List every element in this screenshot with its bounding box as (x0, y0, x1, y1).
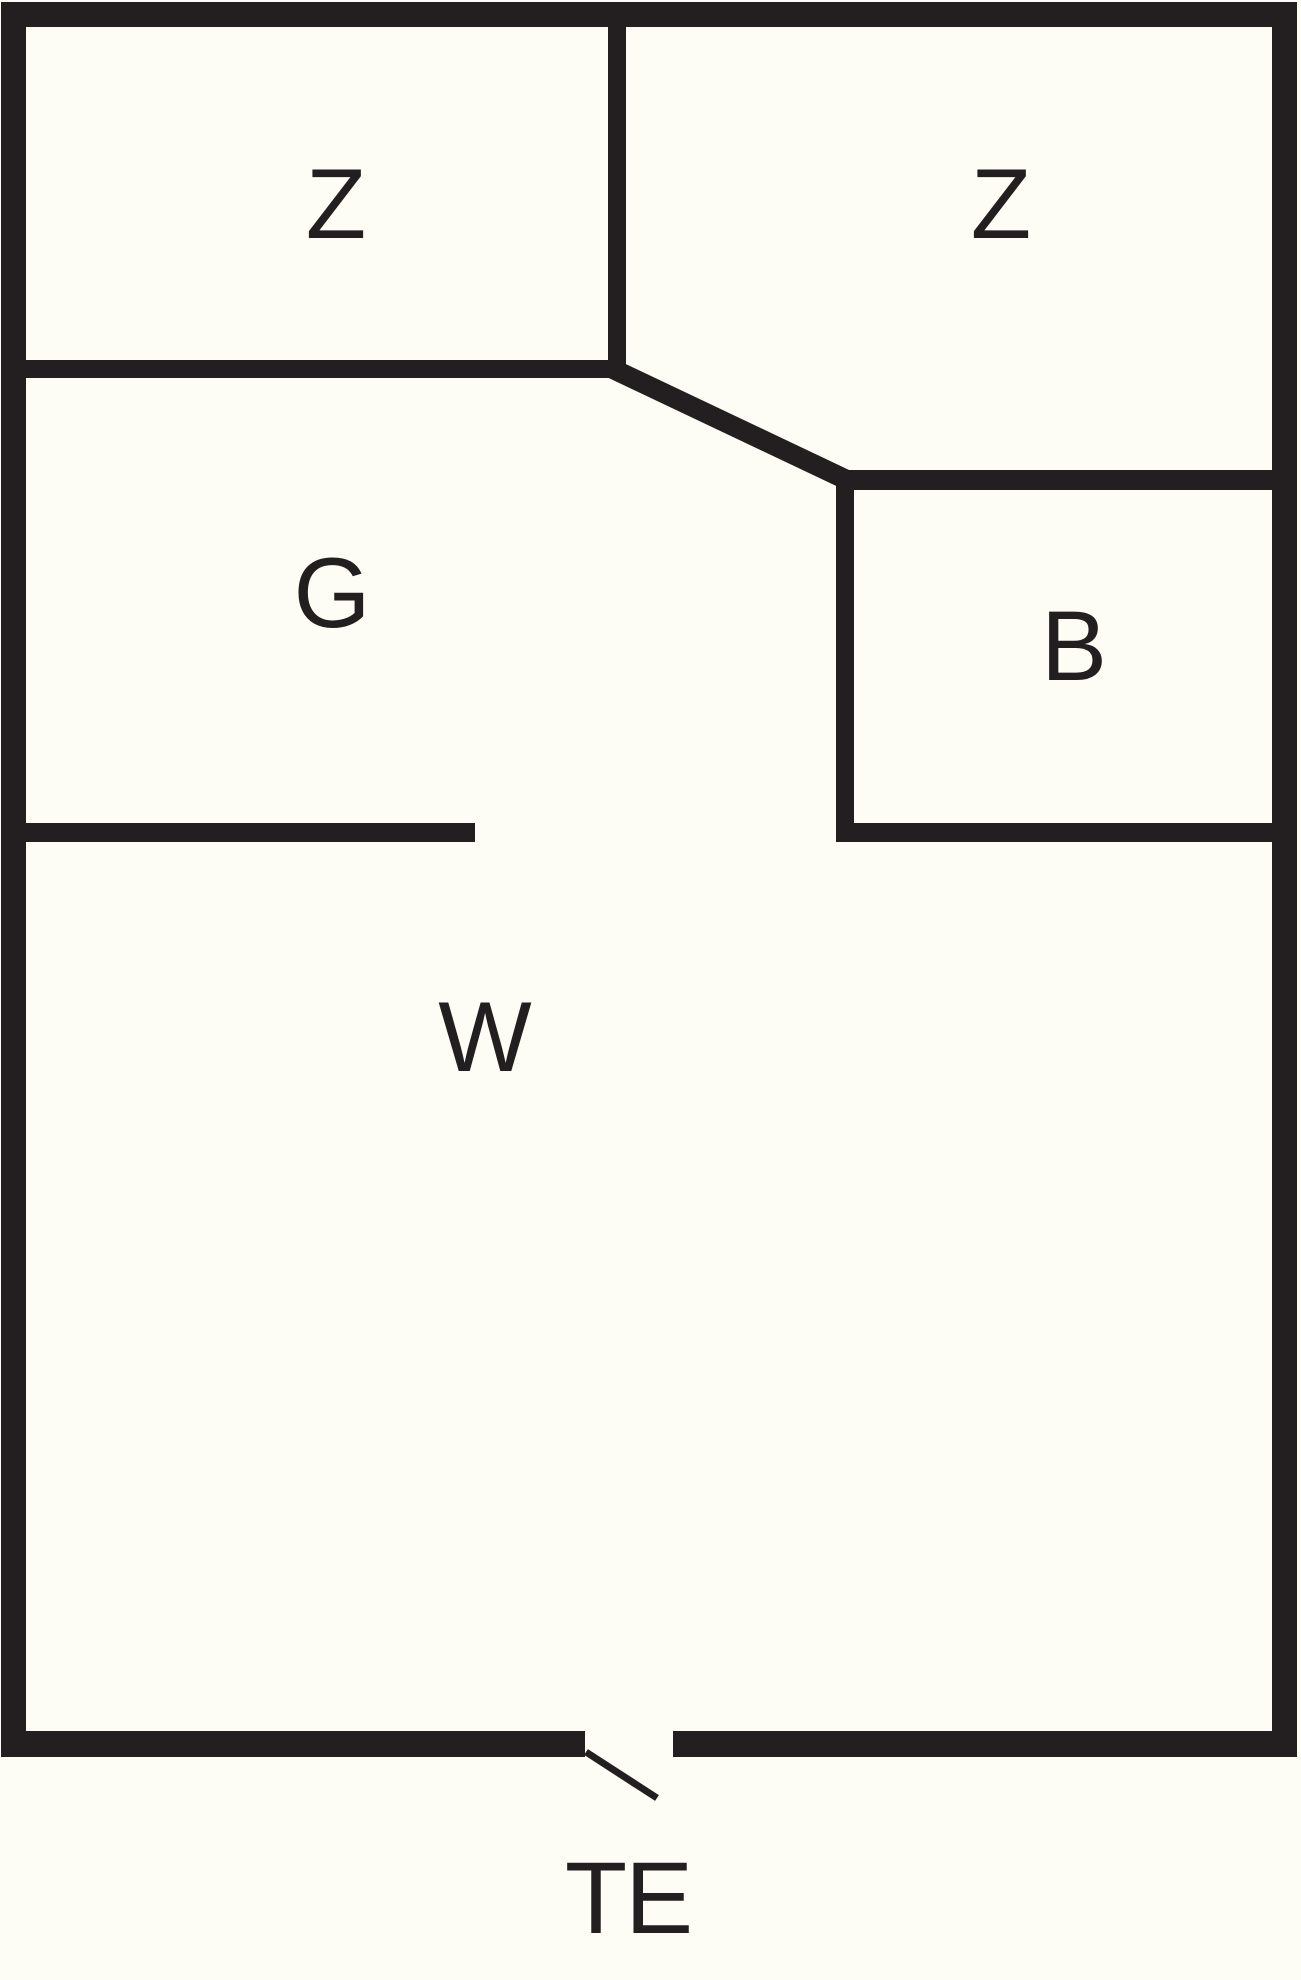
wall-bathroom-left (836, 470, 854, 842)
outer-wall-bottom-right-segment (673, 1731, 1297, 1757)
wall-under-left-bedroom (1, 360, 626, 378)
floor-plan: Z Z G B W TE (0, 0, 1301, 1980)
outer-wall-bottom-left-segment (1, 1731, 585, 1757)
outer-wall-top (1, 2, 1297, 27)
label-hall: G (293, 537, 370, 648)
label-bedroom-left: Z (306, 148, 366, 259)
label-bathroom: B (1041, 590, 1107, 701)
label-entrance: TE (565, 1841, 691, 1955)
outer-wall-left (1, 2, 26, 1757)
label-bedroom-right: Z (971, 148, 1031, 259)
background (0, 0, 1301, 1980)
outer-wall-right (1272, 2, 1297, 1757)
wall-bathroom-top (838, 470, 1272, 490)
wall-bedroom-separator (608, 2, 626, 378)
wall-bathroom-bottom (836, 823, 1272, 842)
label-living-room: W (438, 981, 532, 1092)
wall-hall-bottom (1, 823, 475, 842)
